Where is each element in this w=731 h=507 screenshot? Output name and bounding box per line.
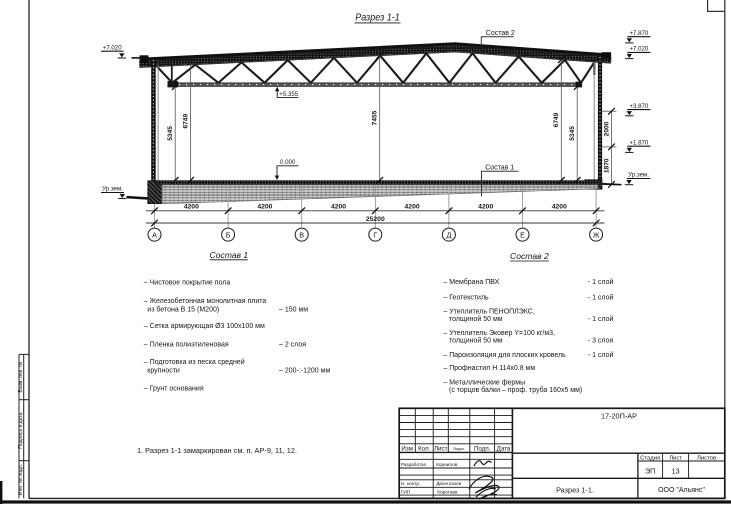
svg-text:толщиной 50 мм: толщиной 50 мм <box>449 337 503 345</box>
svg-text:Двоеглазов: Двоеглазов <box>436 481 461 486</box>
svg-text:5345: 5345 <box>167 126 174 141</box>
svg-text:- 1 слой: - 1 слой <box>588 315 614 323</box>
svg-text:– Грунт основания: – Грунт основания <box>144 385 204 392</box>
svg-text:+7.020: +7.020 <box>103 44 122 51</box>
svg-text:– Пленка полиэтиленовая: – Пленка полиэтиленовая <box>144 342 229 349</box>
svg-text:– Мембрана ПВХ: – Мембрана ПВХ <box>443 278 499 286</box>
svg-text:13: 13 <box>672 466 680 475</box>
svg-text:4200: 4200 <box>552 204 567 211</box>
svg-text:Б: Б <box>226 230 231 239</box>
svg-text:А: А <box>152 230 157 239</box>
svg-text:+5.355: +5.355 <box>279 91 298 98</box>
svg-text:2000: 2000 <box>604 121 611 136</box>
svg-text:Лист: Лист <box>669 456 682 462</box>
svg-text:– Пароизоляция для плоских кро: – Пароизоляция для плоских кровель <box>443 352 566 359</box>
svg-text:Подп.: Подп. <box>474 445 491 452</box>
svg-text:из бетона В 15 (М200): из бетона В 15 (М200) <box>147 305 219 313</box>
svg-text:+1.870: +1.870 <box>629 139 648 146</box>
svg-text:– 200-:-1200 мм: – 200-:-1200 мм <box>279 368 330 375</box>
svg-text:Стадия: Стадия <box>640 456 660 462</box>
svg-text:6749: 6749 <box>553 112 560 127</box>
svg-text:Е: Е <box>520 230 525 239</box>
svg-text:Листов: Листов <box>697 456 716 462</box>
svg-text:Разрез 1-1.: Разрез 1-1. <box>556 486 594 495</box>
svg-text:– 2 слоя: – 2 слоя <box>279 342 306 349</box>
svg-text:25200: 25200 <box>366 216 385 223</box>
svg-text:Корнилов: Корнилов <box>436 462 458 467</box>
svg-text:Разрез 1-1: Разрез 1-1 <box>355 12 400 24</box>
svg-text:Ур.зем.: Ур.зем. <box>102 186 123 193</box>
svg-text:6749: 6749 <box>182 114 189 129</box>
svg-text:+7.020: +7.020 <box>629 46 648 53</box>
svg-text:Дата: Дата <box>497 445 511 452</box>
svg-text:крупности: крупности <box>147 368 180 375</box>
svg-text:Разработал: Разработал <box>401 462 427 467</box>
svg-text:Н. контр.: Н. контр. <box>401 481 420 486</box>
svg-text:Д: Д <box>446 230 451 239</box>
svg-text:5345: 5345 <box>569 126 576 141</box>
svg-text:– Утеплитель Эковер Y=100 кг/м: – Утеплитель Эковер Y=100 кг/м3, <box>443 330 555 337</box>
svg-text:Состав 1: Состав 1 <box>209 250 248 260</box>
svg-text:- 1 слой: - 1 слой <box>588 293 614 301</box>
svg-text:Состав 2: Состав 2 <box>486 30 515 37</box>
svg-text:– Металлические фермы: – Металлические фермы <box>443 380 525 387</box>
svg-text:№док.: №док. <box>453 446 465 451</box>
svg-text:17-20П-АР: 17-20П-АР <box>601 412 637 421</box>
svg-text:(с торцов балки – проф. труба: (с торцов балки – проф. труба 160х5 мм) <box>449 386 582 394</box>
svg-text:Взам. инв. №: Взам. инв. № <box>18 362 24 393</box>
svg-text:Лист: Лист <box>434 445 448 452</box>
svg-text:ГИП: ГИП <box>401 489 410 494</box>
svg-text:– Чистовое покрытие пола: – Чистовое покрытие пола <box>144 279 231 286</box>
svg-text:4200: 4200 <box>184 204 199 211</box>
svg-text:Состав 2: Состав 2 <box>510 251 549 261</box>
svg-text:ООО "Альянс": ООО "Альянс" <box>658 487 705 494</box>
svg-text:4200: 4200 <box>331 204 346 211</box>
svg-text:0.000: 0.000 <box>280 159 296 166</box>
svg-text:В: В <box>299 230 304 239</box>
svg-text:ЭП: ЭП <box>645 466 655 475</box>
svg-text:Изм: Изм <box>401 445 413 452</box>
svg-text:Г: Г <box>373 230 377 239</box>
svg-text:+3.870: +3.870 <box>629 103 648 110</box>
svg-text:Подпись и дата.: Подпись и дата. <box>18 411 24 448</box>
svg-text:4200: 4200 <box>478 204 493 211</box>
svg-text:– Профнастил Н 114х0.8 мм: – Профнастил Н 114х0.8 мм <box>443 365 535 372</box>
svg-text:7455: 7455 <box>372 110 379 125</box>
svg-text:– 150 мм: – 150 мм <box>279 306 308 313</box>
svg-text:Коротаев: Коротаев <box>437 489 458 494</box>
svg-text:- 1 слой: - 1 слой <box>588 278 614 286</box>
svg-text:+7.870: +7.870 <box>629 30 648 37</box>
svg-text:4200: 4200 <box>405 204 420 211</box>
svg-text:– Железобетонная монолитная п: – Железобетонная монолитная плита <box>144 297 267 305</box>
svg-text:Инв. № подл.: Инв. № подл. <box>18 464 24 495</box>
svg-text:Ур.зем.: Ур.зем. <box>628 172 649 179</box>
svg-text:- 3 слоя: - 3 слоя <box>588 338 614 345</box>
svg-text:1. Разрез 1-1 замаркирован см.: 1. Разрез 1-1 замаркирован см. п. АР-9, … <box>137 446 297 455</box>
svg-text:Кол.: Кол. <box>418 445 431 452</box>
svg-text:1870: 1870 <box>604 158 611 173</box>
svg-text:– Утеплитель ПЕНОПЛЭКС,: – Утеплитель ПЕНОПЛЭКС, <box>443 308 534 315</box>
svg-text:Состав 1: Состав 1 <box>485 165 514 172</box>
svg-text:– Подготовка из песка средней: – Подготовка из песка средней <box>144 358 245 366</box>
svg-text:- 1 слой: - 1 слой <box>588 351 614 359</box>
svg-text:– Геотекстиль: – Геотекстиль <box>443 294 489 301</box>
svg-text:– Сетка армирующая Ø3 100х100: – Сетка армирующая Ø3 100х100 мм <box>144 323 265 330</box>
svg-text:4200: 4200 <box>257 204 272 211</box>
svg-text:толщиной 50 мм: толщиной 50 мм <box>449 315 503 323</box>
svg-text:Ж: Ж <box>593 230 600 239</box>
